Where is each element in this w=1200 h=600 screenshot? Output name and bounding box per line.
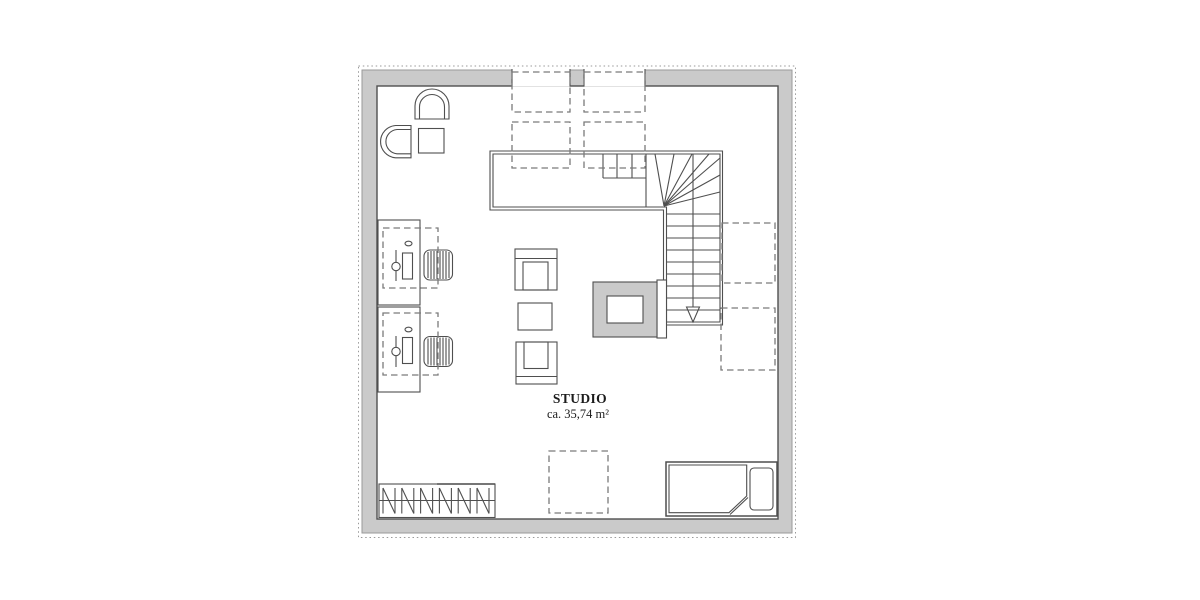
bidet-icon <box>381 126 411 158</box>
pillow-icon <box>750 468 773 510</box>
roof-window-dashed <box>512 122 570 168</box>
roof-window-dashed <box>722 223 775 283</box>
single-bed-icon <box>666 462 777 516</box>
room-area: ca. 35,74 m² <box>547 407 609 421</box>
roof-outline-dotted <box>359 66 796 538</box>
coffee-table-icon <box>518 303 552 330</box>
mattress <box>669 465 747 513</box>
roof-window-dashed <box>584 122 645 168</box>
roof-window-dashed <box>721 308 775 370</box>
washbasin-icon <box>419 129 445 154</box>
room-name: STUDIO <box>553 391 607 406</box>
roof-window-dashed <box>549 451 608 513</box>
floor-plan-page: STUDIO ca. 35,74 m² <box>0 0 1200 600</box>
exterior-walls <box>362 70 792 533</box>
stair-down-arrow-icon <box>687 307 700 322</box>
desk-lamp-icon <box>392 347 400 355</box>
armchair-icon <box>516 342 557 384</box>
floor-plan: STUDIO ca. 35,74 m² <box>0 0 1200 600</box>
desk-lamp-icon <box>392 262 400 270</box>
window-opening <box>512 69 570 87</box>
office-chair-icon <box>424 250 453 280</box>
room-label: STUDIO ca. 35,74 m² <box>547 391 609 421</box>
blanket-fold <box>730 498 748 515</box>
desk-icon <box>378 220 420 305</box>
office-chair-icon <box>424 337 453 367</box>
toilet-icon <box>415 89 449 119</box>
desk-icon <box>378 307 420 392</box>
armchair-icon <box>515 249 557 290</box>
window-opening <box>584 69 645 87</box>
chimney-icon <box>593 280 667 338</box>
wardrobe-icon <box>379 484 495 518</box>
